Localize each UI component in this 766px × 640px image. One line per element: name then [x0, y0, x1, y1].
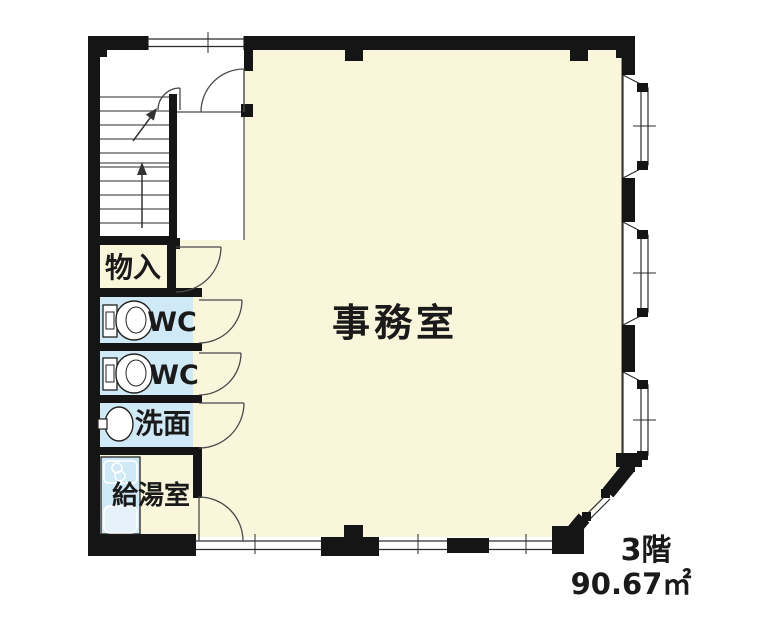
door-jamb: [241, 104, 253, 117]
wall-right: [622, 178, 635, 222]
floor-plan-page: 事務室 物入 WC WC 洗面 給湯室 3階 90.67㎡: [0, 0, 766, 640]
toilet-icon-upper: [103, 301, 152, 340]
partition-wall: [88, 395, 202, 403]
office-label: 事務室: [332, 301, 458, 345]
window-jamb: [637, 230, 648, 239]
window-body: [148, 36, 244, 50]
kitchenette-label: 給湯室: [112, 480, 190, 511]
corner-column: [88, 36, 107, 57]
window-jamb: [637, 161, 648, 170]
basin-bowl: [105, 407, 133, 441]
column-mark: [570, 50, 588, 61]
wall-top: [244, 36, 635, 50]
wall-block: [447, 538, 489, 553]
column-mark: [344, 525, 363, 538]
basin-tap: [98, 419, 107, 429]
stair-wall: [88, 236, 177, 245]
column-mark: [345, 50, 363, 61]
window-jamb: [637, 308, 648, 317]
wall-right: [622, 325, 635, 372]
floor-plan-svg: 事務室 物入 WC WC 洗面 給湯室 3階 90.67㎡: [0, 0, 766, 640]
entry-wall: [244, 36, 253, 71]
storage-label: 物入: [105, 251, 161, 284]
wall-bottom: [88, 534, 196, 556]
floor-number-label: 3階: [621, 533, 672, 568]
toilet-icon-lower: [103, 354, 152, 393]
toilet-tank: [103, 305, 117, 337]
wall-right: [622, 36, 635, 75]
toilet-tank: [103, 358, 117, 390]
washroom-label: 洗面: [135, 407, 191, 440]
wall-block: [321, 537, 379, 556]
stair-wall: [169, 94, 177, 245]
window-jamb: [637, 83, 648, 92]
wc-upper-label: WC: [147, 307, 197, 338]
window-jamb: [637, 380, 648, 389]
wc-lower-label: WC: [149, 360, 199, 391]
partition-wall: [88, 288, 202, 297]
kitchenette-wall: [193, 455, 202, 498]
wall-block: [616, 453, 642, 467]
partition-wall: [88, 447, 202, 455]
floor-area-label: 90.67㎡: [571, 567, 692, 601]
partition-wall: [88, 343, 202, 351]
corner-column: [552, 526, 584, 554]
